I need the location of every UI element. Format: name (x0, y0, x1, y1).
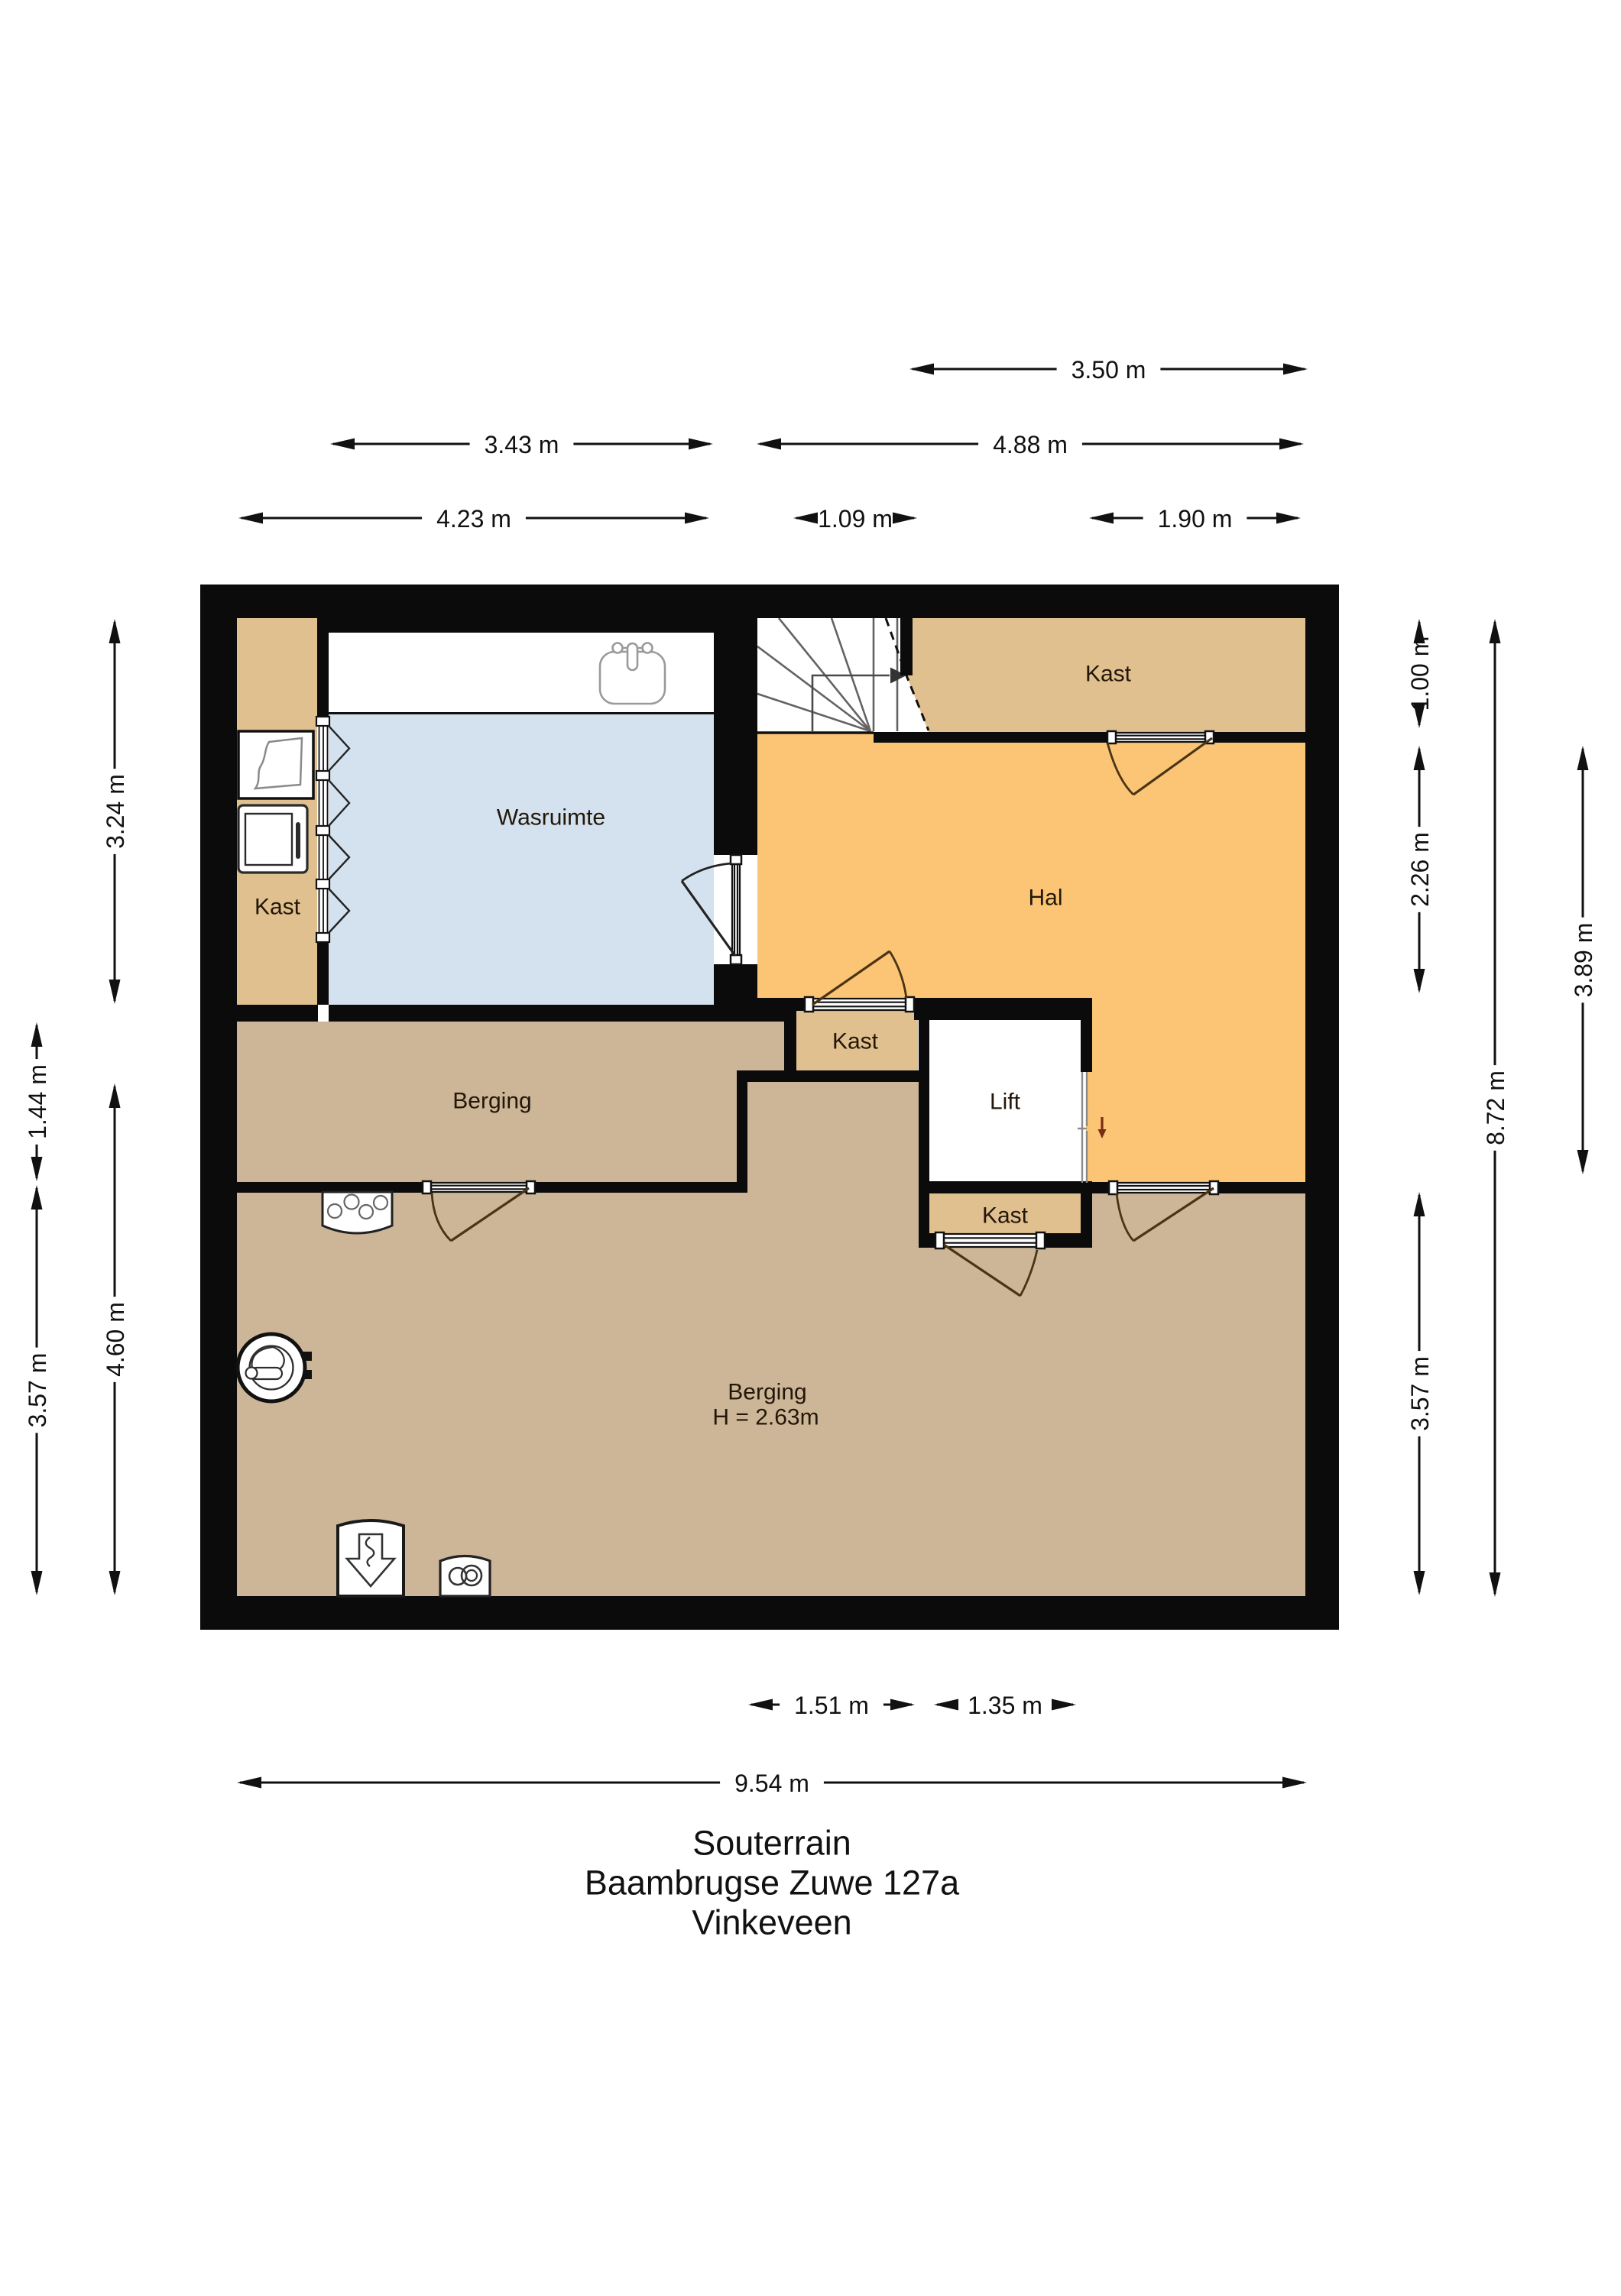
svg-text:9.54 m: 9.54 m (734, 1770, 809, 1797)
svg-text:Hal: Hal (1028, 886, 1062, 911)
svg-text:Berging: Berging (452, 1089, 531, 1114)
svg-text:Kast: Kast (254, 895, 301, 920)
svg-text:1.51 m: 1.51 m (794, 1692, 869, 1719)
svg-text:4.88 m: 4.88 m (993, 431, 1068, 458)
svg-text:Wasruimte: Wasruimte (497, 805, 605, 831)
svg-text:Lift: Lift (990, 1090, 1021, 1115)
svg-text:H = 2.63m: H = 2.63m (712, 1405, 819, 1430)
svg-text:Vinkeveen: Vinkeveen (692, 1903, 851, 1942)
svg-text:2.26 m: 2.26 m (1406, 832, 1434, 907)
svg-text:3.57 m: 3.57 m (24, 1353, 51, 1428)
svg-text:1.35 m: 1.35 m (968, 1692, 1042, 1719)
svg-text:Kast: Kast (832, 1029, 879, 1054)
svg-text:Kast: Kast (1085, 662, 1132, 687)
svg-text:1.09 m: 1.09 m (818, 505, 893, 533)
svg-text:Berging: Berging (728, 1380, 806, 1405)
svg-text:3.89 m: 3.89 m (1570, 923, 1597, 998)
svg-text:4.60 m: 4.60 m (102, 1302, 129, 1377)
svg-text:4.23 m: 4.23 m (436, 505, 511, 533)
svg-text:Baambrugse Zuwe 127a: Baambrugse Zuwe 127a (585, 1864, 960, 1903)
svg-text:3.43 m: 3.43 m (485, 431, 559, 458)
svg-text:1.44 m: 1.44 m (24, 1064, 51, 1139)
svg-text:Kast: Kast (982, 1203, 1029, 1229)
svg-text:3.24 m: 3.24 m (102, 774, 129, 849)
svg-text:3.57 m: 3.57 m (1406, 1356, 1434, 1431)
svg-text:1.00 m: 1.00 m (1406, 636, 1434, 711)
svg-text:3.50 m: 3.50 m (1071, 356, 1146, 384)
svg-text:8.72 m: 8.72 m (1482, 1070, 1509, 1145)
svg-text:Souterrain: Souterrain (692, 1824, 851, 1863)
svg-text:1.90 m: 1.90 m (1158, 505, 1233, 533)
